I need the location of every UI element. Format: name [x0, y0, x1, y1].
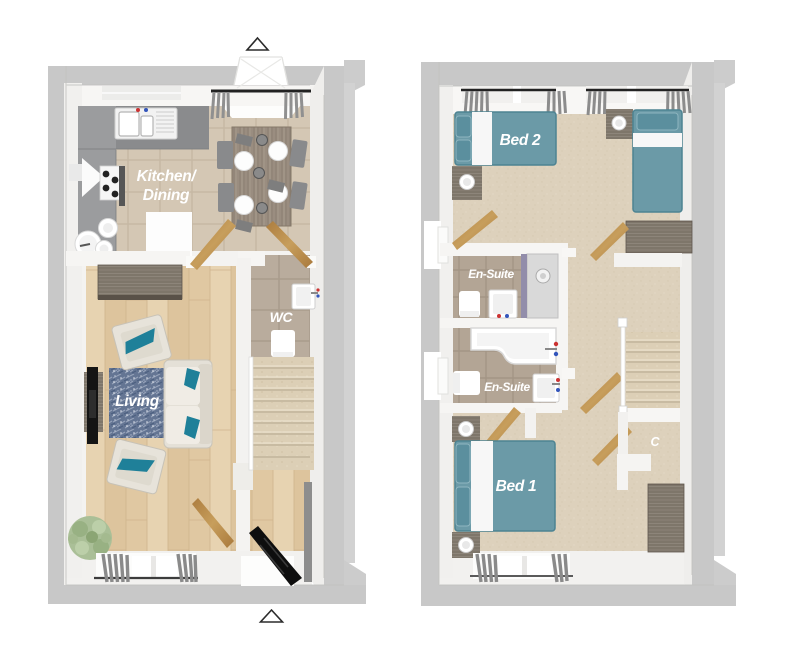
svg-text:Living: Living: [115, 393, 160, 410]
svg-text:C: C: [650, 435, 660, 449]
svg-text:En-Suite: En-Suite: [484, 380, 530, 394]
svg-text:Bed 1: Bed 1: [496, 478, 537, 495]
svg-text:Bed 2: Bed 2: [500, 132, 541, 149]
svg-text:Dining: Dining: [143, 187, 190, 204]
svg-text:WC: WC: [270, 309, 294, 325]
svg-text:Kitchen/: Kitchen/: [137, 168, 198, 185]
svg-text:En-Suite: En-Suite: [468, 267, 514, 281]
